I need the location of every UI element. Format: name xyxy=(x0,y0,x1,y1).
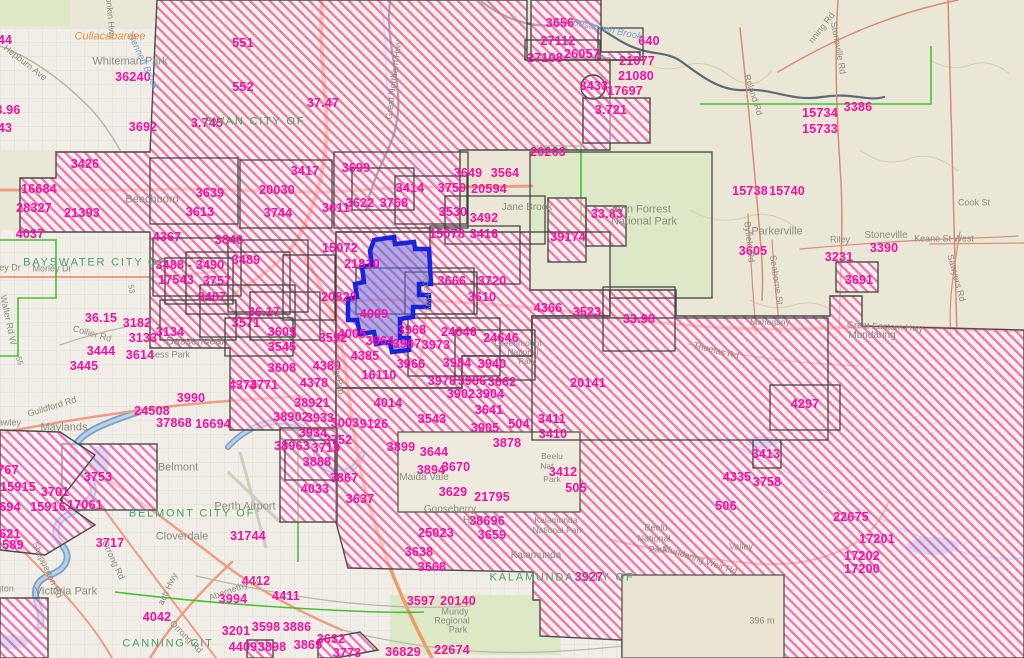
map-viewport[interactable]: 443.96435515523624036923.74537.473426166… xyxy=(0,0,1024,658)
unzoned-area xyxy=(398,432,580,512)
map-canvas-svg xyxy=(0,0,1024,658)
hatched-planning-area[interactable] xyxy=(247,640,273,658)
urban-area xyxy=(0,28,157,150)
unzoned-area xyxy=(622,575,784,658)
hatched-planning-area[interactable] xyxy=(586,206,626,246)
hatched-planning-area[interactable] xyxy=(280,428,337,522)
hatched-planning-area[interactable] xyxy=(836,262,878,292)
hatched-planning-area[interactable] xyxy=(581,75,605,99)
park-area xyxy=(0,0,70,26)
hatched-planning-area[interactable] xyxy=(0,598,48,658)
hatched-planning-area[interactable] xyxy=(548,198,586,262)
hatched-planning-area[interactable] xyxy=(583,98,650,143)
